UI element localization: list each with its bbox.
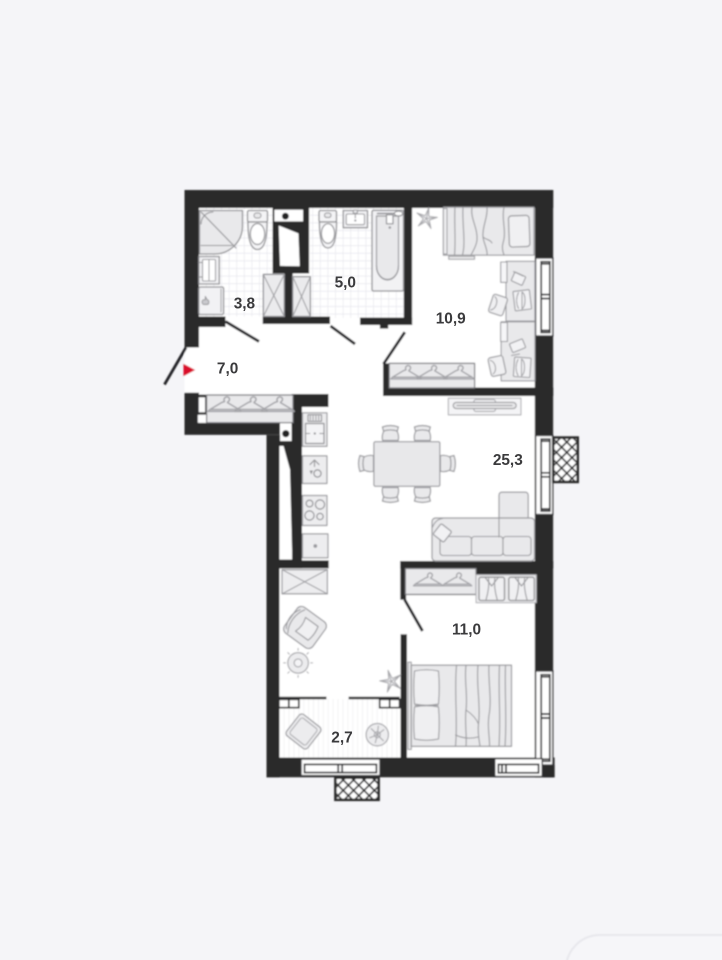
svg-text:10,9: 10,9 — [436, 311, 466, 328]
svg-text:11,0: 11,0 — [452, 622, 481, 639]
svg-text:3,8: 3,8 — [234, 295, 256, 312]
svg-text:25,3: 25,3 — [493, 452, 523, 469]
svg-text:7,0: 7,0 — [217, 360, 238, 377]
svg-text:2,7: 2,7 — [331, 730, 352, 747]
svg-text:5,0: 5,0 — [335, 275, 356, 292]
